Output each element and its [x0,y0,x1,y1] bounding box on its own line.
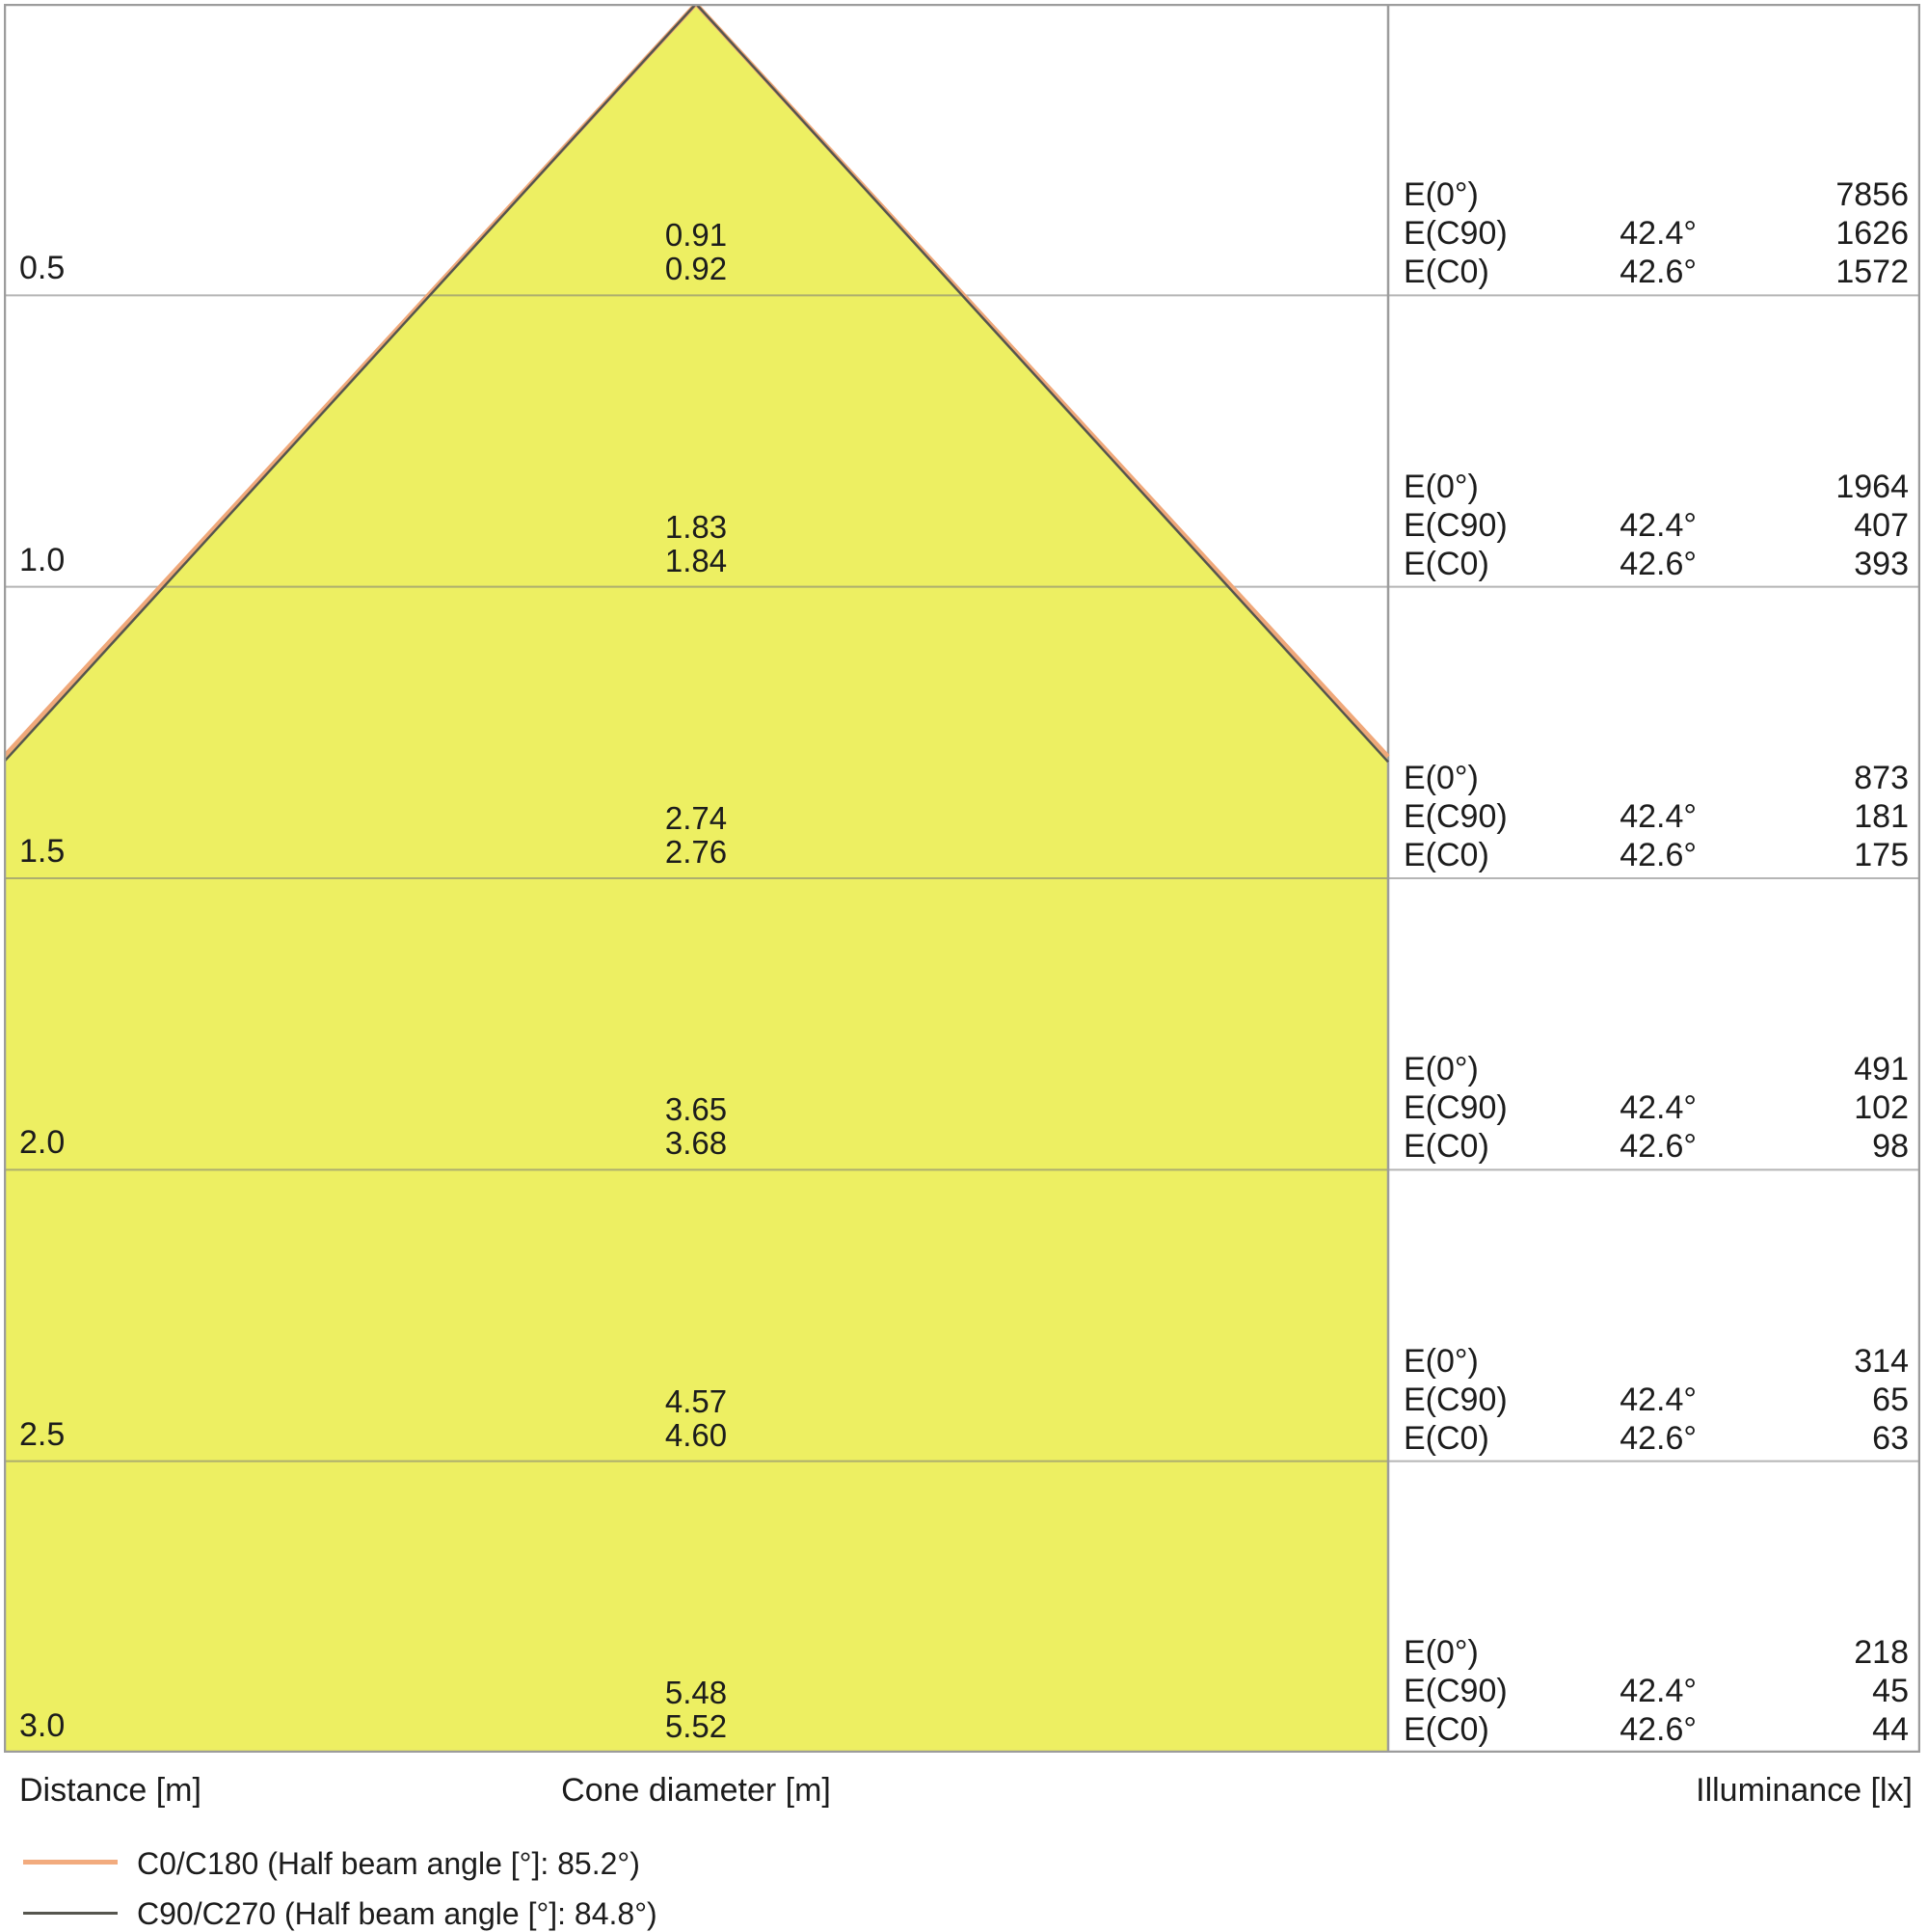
illuminance-row: E(C0)42.6°393 [1404,545,1909,583]
illuminance-value: 1572 [1697,253,1909,291]
illuminance-plane-label: E(C90) [1404,1088,1571,1127]
illuminance-plane-label: E(0°) [1404,1633,1571,1672]
illuminance-plane-label: E(C90) [1404,1381,1571,1419]
illuminance-value: 407 [1697,506,1909,545]
illuminance-value: 218 [1697,1633,1909,1672]
half-beam-angle-value: 42.6° [1571,1127,1697,1166]
illuminance-plane-label: E(C90) [1404,1672,1571,1710]
illuminance-value: 1964 [1697,468,1909,506]
cone-diameter-value: 1.84 [665,544,727,577]
cone-diameter-value: 2.74 [665,801,727,835]
illuminance-plane-label: E(0°) [1404,175,1571,214]
illuminance-value: 393 [1697,545,1909,583]
illuminance-block: E(0°)314E(C90)42.4°65E(C0)42.6°63 [1404,1342,1909,1458]
illuminance-row: E(C0)42.6°98 [1404,1127,1909,1166]
legend-c0-line-swatch [23,1860,118,1865]
illuminance-row: E(0°)1964 [1404,468,1909,506]
cone-diameter-value: 2.76 [665,835,727,869]
illuminance-plane-label: E(0°) [1404,468,1571,506]
illuminance-row: E(C0)42.6°44 [1404,1710,1909,1749]
illuminance-row: E(C90)42.4°181 [1404,797,1909,836]
illuminance-value: 102 [1697,1088,1909,1127]
cone-diameter-value: 0.92 [665,252,727,285]
illuminance-row: E(C0)42.6°1572 [1404,253,1909,291]
illuminance-value: 44 [1697,1710,1909,1749]
distance-tick-label: 0.5 [19,251,65,285]
cone-diameter-value-pair: 2.742.76 [665,801,727,869]
illuminance-plane-label: E(C0) [1404,545,1571,583]
illuminance-block: E(0°)873E(C90)42.4°181E(C0)42.6°175 [1404,759,1909,874]
illuminance-plane-label: E(C90) [1404,797,1571,836]
cone-diameter-value: 3.68 [665,1126,727,1160]
distance-tick-label: 2.0 [19,1125,65,1160]
cone-diameter-value: 4.57 [665,1384,727,1418]
half-beam-angle-value: 42.4° [1571,214,1697,253]
half-beam-angle-value: 42.6° [1571,253,1697,291]
cone-diagram-chart: 0.51.01.52.02.53.0 0.910.921.831.842.742… [4,4,1920,1753]
distance-tick-label: 1.0 [19,543,65,577]
half-beam-angle-value: 42.4° [1571,1381,1697,1419]
half-beam-angle-value [1571,759,1697,797]
half-beam-angle-value: 42.6° [1571,1419,1697,1458]
half-beam-angle-value: 42.4° [1571,1672,1697,1710]
illuminance-row: E(0°)491 [1404,1050,1909,1088]
cone-diameter-value: 4.60 [665,1418,727,1452]
illuminance-row: E(C0)42.6°63 [1404,1419,1909,1458]
illuminance-plane-label: E(0°) [1404,759,1571,797]
half-beam-angle-value [1571,1633,1697,1672]
illuminance-value: 7856 [1697,175,1909,214]
cone-diameter-value: 5.52 [665,1709,727,1743]
cone-diagram-page: { "chart_data": { "type": "area", "subty… [0,0,1928,1927]
illuminance-row: E(0°)873 [1404,759,1909,797]
half-beam-angle-value: 42.4° [1571,797,1697,836]
illuminance-value: 175 [1697,836,1909,874]
half-beam-angle-value [1571,1050,1697,1088]
cone-diameter-value-pair: 3.653.68 [665,1092,727,1160]
illuminance-block: E(0°)491E(C90)42.4°102E(C0)42.6°98 [1404,1050,1909,1166]
illuminance-axis-title: Illuminance [lx] [1696,1772,1913,1809]
illuminance-block: E(0°)1964E(C90)42.4°407E(C0)42.6°393 [1404,468,1909,583]
distance-tick-label: 2.5 [19,1417,65,1452]
cone-diameter-axis-title: Cone diameter [m] [561,1772,831,1809]
illuminance-row: E(0°)314 [1404,1342,1909,1381]
illuminance-value: 63 [1697,1419,1909,1458]
illuminance-block: E(0°)218E(C90)42.4°45E(C0)42.6°44 [1404,1633,1909,1749]
illuminance-plane-label: E(C0) [1404,1127,1571,1166]
cone-diameter-value-pair: 4.574.60 [665,1384,727,1452]
illuminance-value: 1626 [1697,214,1909,253]
cone-diameter-value: 1.83 [665,510,727,544]
distance-tick-label: 3.0 [19,1708,65,1743]
half-beam-angle-value: 42.6° [1571,545,1697,583]
half-beam-angle-value [1571,1342,1697,1381]
illuminance-value: 873 [1697,759,1909,797]
illuminance-value: 314 [1697,1342,1909,1381]
illuminance-row: E(0°)218 [1404,1633,1909,1672]
illuminance-value: 65 [1697,1381,1909,1419]
cone-diameter-value-pair: 1.831.84 [665,510,727,577]
half-beam-angle-value [1571,468,1697,506]
half-beam-angle-value: 42.4° [1571,1088,1697,1127]
illuminance-plane-label: E(C90) [1404,214,1571,253]
legend-c90-line-swatch [23,1912,118,1915]
illuminance-block: E(0°)7856E(C90)42.4°1626E(C0)42.6°1572 [1404,175,1909,291]
cone-diameter-value-pair: 5.485.52 [665,1676,727,1743]
cone-diameter-value-pair: 0.910.92 [665,218,727,285]
illuminance-row: E(C90)42.4°45 [1404,1672,1909,1710]
illuminance-row: E(C90)42.4°102 [1404,1088,1909,1127]
cone-diameter-value: 3.65 [665,1092,727,1126]
half-beam-angle-value: 42.6° [1571,1710,1697,1749]
illuminance-plane-label: E(C90) [1404,506,1571,545]
illuminance-plane-label: E(C0) [1404,1710,1571,1749]
illuminance-plane-label: E(C0) [1404,253,1571,291]
illuminance-plane-label: E(C0) [1404,1419,1571,1458]
illuminance-value: 98 [1697,1127,1909,1166]
illuminance-row: E(C90)42.4°65 [1404,1381,1909,1419]
legend-entry-label: C0/C180 (Half beam angle [°]: 85.2°) [137,1845,640,1882]
illuminance-value: 45 [1697,1672,1909,1710]
illuminance-row: E(0°)7856 [1404,175,1909,214]
illuminance-row: E(C90)42.4°1626 [1404,214,1909,253]
distance-tick-label: 1.5 [19,834,65,869]
cone-diameter-value: 5.48 [665,1676,727,1709]
half-beam-angle-value: 42.4° [1571,506,1697,545]
illuminance-value: 181 [1697,797,1909,836]
illuminance-plane-label: E(C0) [1404,836,1571,874]
cone-diameter-value: 0.91 [665,218,727,252]
half-beam-angle-value [1571,175,1697,214]
illuminance-row: E(C0)42.6°175 [1404,836,1909,874]
illuminance-value: 491 [1697,1050,1909,1088]
half-beam-angle-value: 42.6° [1571,836,1697,874]
illuminance-row: E(C90)42.4°407 [1404,506,1909,545]
legend-entry-label: C90/C270 (Half beam angle [°]: 84.8°) [137,1895,657,1932]
distance-axis-title: Distance [m] [19,1772,201,1809]
illuminance-plane-label: E(0°) [1404,1050,1571,1088]
illuminance-plane-label: E(0°) [1404,1342,1571,1381]
